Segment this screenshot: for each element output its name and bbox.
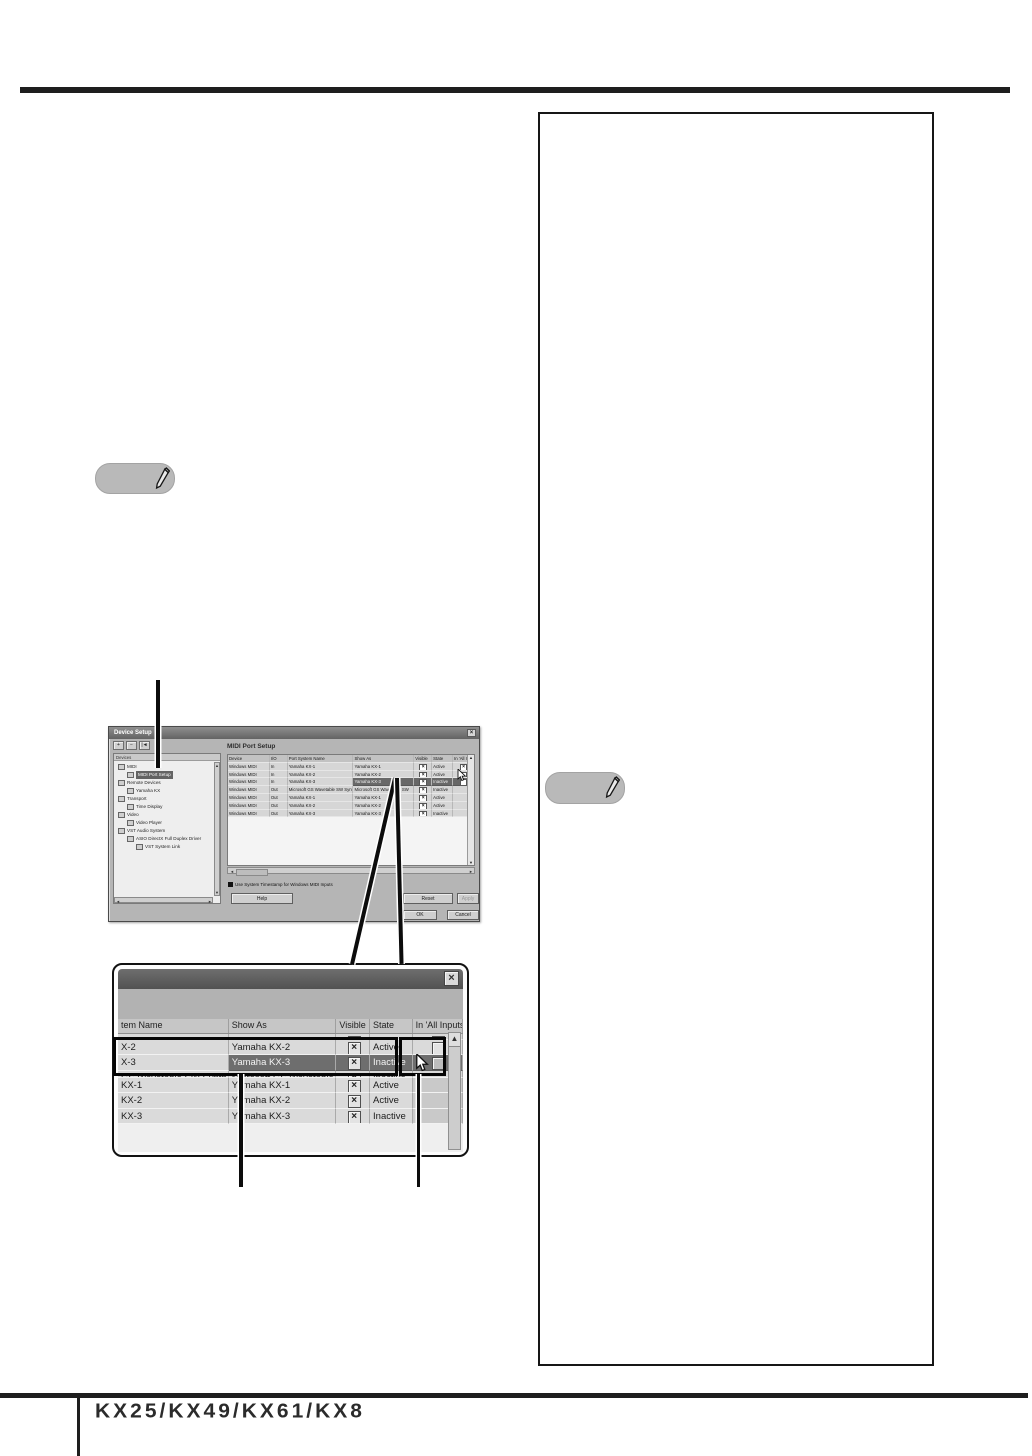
io-cell: Out: [270, 786, 288, 794]
scroll-up-icon[interactable]: ▲: [449, 1033, 460, 1047]
checkbox-checked-icon[interactable]: ×: [419, 803, 427, 810]
folder-icon: [127, 772, 134, 778]
scroll-up-icon[interactable]: ▲: [468, 755, 474, 760]
port-cell: Yamaha KX-1: [288, 763, 354, 771]
note-icon: [95, 463, 175, 494]
table-header-row: tem NameShow AsVisibleStateIn 'All Input…: [118, 1019, 463, 1034]
tree-vertical-scrollbar[interactable]: ▲ ▼: [214, 762, 220, 896]
close-icon[interactable]: ×: [444, 971, 459, 986]
visible-cell: ×: [336, 1109, 370, 1125]
folder-icon: [127, 804, 134, 810]
column-header: Device: [228, 755, 270, 763]
port-cell: Yamaha KX-1: [288, 794, 354, 802]
manual-page: Device Setup × + − |◄ Devices MIDIMIDI P…: [0, 0, 1032, 1456]
table-row[interactable]: Windows MIDIOutYamaha KX-2Yamaha KX-2×Ac…: [228, 802, 474, 810]
device-cell: Windows MIDI: [228, 810, 270, 818]
folder-icon: [127, 836, 134, 842]
tree-item[interactable]: Transport: [115, 795, 213, 803]
timestamp-label: Use System Timestamp for Windows MIDI In…: [235, 882, 333, 887]
tree-item-label: Remote Devices: [127, 779, 161, 787]
io-cell: In: [270, 778, 288, 786]
show-cell: Yamaha KX-1: [353, 763, 414, 771]
column-header: State: [370, 1019, 413, 1033]
timestamp-option[interactable]: Use System Timestamp for Windows MIDI In…: [228, 882, 333, 889]
tree-item-label: ASIO DirectX Full Duplex Driver: [136, 835, 201, 843]
visible-cell: ×: [414, 778, 432, 786]
folder-icon: [127, 788, 134, 794]
scroll-left-icon[interactable]: ◄: [229, 869, 235, 874]
scroll-down-icon[interactable]: ▼: [468, 860, 474, 865]
folder-icon: [118, 828, 125, 834]
tree-item[interactable]: MIDI: [115, 763, 213, 771]
apply-button[interactable]: Apply: [457, 893, 479, 904]
midi-port-table-body: DeviceI/OPort System NameShow AsVisibleS…: [228, 755, 474, 817]
show-as-cell: Yamaha KX-3: [229, 1109, 337, 1125]
io-cell: Out: [270, 802, 288, 810]
tree-item-label: MIDI: [127, 763, 137, 771]
tree-item-label: Video Player: [136, 819, 162, 827]
state-cell: Active: [432, 794, 453, 802]
state-cell: Active: [370, 1093, 413, 1109]
table-row[interactable]: Windows MIDIOutMicrosoft GS Wavetable SW…: [228, 786, 474, 794]
text-column-box: [538, 112, 934, 1366]
device-setup-dialog: Device Setup × + − |◄ Devices MIDIMIDI P…: [108, 726, 480, 922]
state-cell: Active: [432, 763, 453, 771]
port-cell: Microsoft GS Wavetable SW Synth: [288, 786, 354, 794]
column-header: In 'All Inputs': [413, 1019, 463, 1033]
tree-item-label: VST Audio System: [127, 827, 165, 835]
tree-item[interactable]: MIDI Port Setup: [115, 771, 213, 779]
visible-cell: ×: [414, 771, 432, 779]
visible-cell: ×: [414, 763, 432, 771]
callout-box-rows: [113, 1037, 398, 1076]
table-row[interactable]: Windows MIDIInYamaha KX-1Yamaha KX-1×Act…: [228, 763, 474, 771]
device-cell: Windows MIDI: [228, 778, 270, 786]
pencil-icon: [154, 467, 170, 491]
column-header: Show As: [229, 1019, 337, 1033]
tree-item[interactable]: ASIO DirectX Full Duplex Driver: [115, 835, 213, 843]
table-row[interactable]: Windows MIDIInYamaha KX-3Yamaha KX-3×Ina…: [228, 778, 474, 786]
table-header-row: DeviceI/OPort System NameShow AsVisibleS…: [228, 755, 474, 763]
state-cell: Active: [370, 1078, 413, 1094]
table-row[interactable]: Windows MIDIOutYamaha KX-3Yamaha KX-3×In…: [228, 810, 474, 818]
state-cell: Active: [432, 771, 453, 779]
show-cell: Yamaha KX-3: [353, 778, 414, 786]
checkbox-checked-icon[interactable]: ×: [419, 779, 427, 786]
device-cell: Windows MIDI: [228, 786, 270, 794]
tree-item-label: MIDI Port Setup: [136, 771, 173, 779]
devices-panel: Devices MIDIMIDI Port SetupRemote Device…: [113, 753, 221, 904]
show-cell: Yamaha KX-2: [353, 771, 414, 779]
device-cell: Windows MIDI: [228, 794, 270, 802]
state-cell: Inactive: [432, 786, 453, 794]
callout-line-checkbox: [417, 1074, 421, 1187]
column-header: Show As: [353, 755, 414, 763]
device-cell: Windows MIDI: [228, 771, 270, 779]
table-vertical-scrollbar[interactable]: ▲: [448, 1032, 461, 1150]
dialog-title: Device Setup: [114, 730, 152, 736]
show-cell: Microsoft GS Wavetable SW: [353, 786, 414, 794]
io-cell: In: [270, 771, 288, 779]
tree-item[interactable]: Video: [115, 811, 213, 819]
reset-button[interactable]: Reset: [403, 893, 453, 904]
folder-icon: [136, 844, 143, 850]
column-header: Visible: [336, 1019, 370, 1033]
folder-icon: [118, 764, 125, 770]
tree-item[interactable]: VST Audio System: [115, 827, 213, 835]
dialog-toolbar-area: [118, 989, 463, 1019]
name-cell: KX-3: [118, 1109, 229, 1125]
port-cell: Yamaha KX-3: [288, 810, 354, 818]
tree-item-label: Yamaha KX: [136, 787, 160, 795]
tree-item-label: Video: [127, 811, 139, 819]
checkbox-checked-icon[interactable]: ×: [419, 772, 427, 779]
state-cell: Inactive: [432, 810, 453, 818]
device-tree: MIDIMIDI Port SetupRemote DevicesYamaha …: [115, 763, 213, 851]
tree-item[interactable]: Remote Devices: [115, 779, 213, 787]
visible-cell: ×: [414, 786, 432, 794]
tree-item[interactable]: Yamaha KX: [115, 787, 213, 795]
checkbox-checked-icon[interactable]: ×: [419, 795, 427, 802]
checkbox-checked-icon[interactable]: ×: [348, 1111, 361, 1124]
scroll-left-icon[interactable]: ◄: [115, 899, 121, 904]
port-cell: Yamaha KX-2: [288, 771, 354, 779]
visible-cell: ×: [336, 1093, 370, 1109]
add-device-button[interactable]: +: [113, 741, 124, 750]
column-header: Visible: [414, 755, 432, 763]
scroll-up-icon[interactable]: ▲: [215, 763, 219, 768]
show-as-cell: Yamaha KX-2: [229, 1093, 337, 1109]
table-vertical-scrollbar[interactable]: ▲ ▼: [467, 755, 474, 865]
checkbox-checked-icon[interactable]: ×: [348, 1080, 361, 1093]
visible-cell: ×: [336, 1078, 370, 1094]
column-header: I/O: [270, 755, 288, 763]
mouse-cursor-icon: [415, 1054, 430, 1074]
product-logo: KX25/KX49/KX61/KX8: [95, 1401, 365, 1424]
folder-icon: [118, 780, 125, 786]
checkbox-checked-icon[interactable]: [228, 882, 233, 887]
table-horizontal-scrollbar[interactable]: ◄ ►: [227, 867, 475, 874]
table-row[interactable]: Windows MIDIOutYamaha KX-1Yamaha KX-1×Ac…: [228, 794, 474, 802]
show-cell: Yamaha KX-1: [353, 794, 414, 802]
close-icon[interactable]: ×: [467, 729, 476, 737]
remove-device-button[interactable]: −: [126, 741, 137, 750]
device-cell: Windows MIDI: [228, 763, 270, 771]
dialog-title-bar: [118, 969, 463, 989]
column-header: State: [432, 755, 453, 763]
checkbox-checked-icon[interactable]: ×: [419, 764, 427, 771]
checkbox-checked-icon[interactable]: ×: [419, 787, 427, 794]
column-header: tem Name: [118, 1019, 229, 1033]
io-cell: Out: [270, 810, 288, 818]
help-button[interactable]: Help: [231, 893, 293, 904]
folder-icon: [118, 812, 125, 818]
checkbox-checked-icon[interactable]: ×: [419, 811, 427, 818]
port-cell: Yamaha KX-2: [288, 802, 354, 810]
tree-item-label: Time Display: [136, 803, 162, 811]
footer-vertical-line: [77, 1393, 80, 1456]
table-row[interactable]: Windows MIDIInYamaha KX-2Yamaha KX-2×Act…: [228, 771, 474, 779]
cancel-button[interactable]: Cancel: [447, 910, 479, 920]
visible-cell: ×: [414, 810, 432, 818]
note-icon: [545, 772, 625, 804]
top-rule: [20, 87, 1010, 93]
name-cell: KX-2: [118, 1093, 229, 1109]
table-row[interactable]: KX-3Yamaha KX-3×Inactive: [118, 1109, 463, 1125]
tree-item[interactable]: Time Display: [115, 803, 213, 811]
mouse-cursor-icon: [457, 769, 467, 783]
io-cell: In: [270, 763, 288, 771]
scroll-down-icon[interactable]: ▼: [215, 890, 219, 895]
folder-icon: [127, 820, 134, 826]
callout-line-rows: [239, 1074, 243, 1187]
midi-port-setup-heading: MIDI Port Setup: [227, 743, 275, 750]
footer-rule: [0, 1393, 1028, 1398]
state-cell: Inactive: [370, 1109, 413, 1125]
device-cell: Windows MIDI: [228, 802, 270, 810]
scroll-right-icon[interactable]: ►: [467, 869, 473, 874]
goto-device-button[interactable]: |◄: [139, 741, 150, 750]
scroll-right-icon[interactable]: ►: [206, 899, 212, 904]
devices-panel-header: Devices: [114, 754, 220, 761]
tree-item-label: VST System Link: [145, 843, 180, 851]
tree-horizontal-scrollbar[interactable]: ◄ ►: [114, 897, 213, 903]
dialog-title-bar[interactable]: Device Setup ×: [109, 727, 479, 739]
tree-item[interactable]: Video Player: [115, 819, 213, 827]
ok-button[interactable]: OK: [403, 910, 437, 920]
state-cell: Active: [432, 802, 453, 810]
io-cell: Out: [270, 794, 288, 802]
show-cell: Yamaha KX-2: [353, 802, 414, 810]
state-cell: Inactive: [432, 778, 453, 786]
table-row[interactable]: KX-1Yamaha KX-1×Active: [118, 1078, 463, 1094]
tree-item[interactable]: VST System Link: [115, 843, 213, 851]
show-as-cell: Yamaha KX-1: [229, 1078, 337, 1094]
checkbox-checked-icon[interactable]: ×: [348, 1095, 361, 1108]
name-cell: KX-1: [118, 1078, 229, 1094]
table-row[interactable]: KX-2Yamaha KX-2×Active: [118, 1093, 463, 1109]
folder-icon: [118, 796, 125, 802]
midi-port-table: DeviceI/OPort System NameShow AsVisibleS…: [227, 754, 475, 866]
visible-cell: ×: [414, 802, 432, 810]
port-cell: Yamaha KX-3: [288, 778, 354, 786]
visible-cell: ×: [414, 794, 432, 802]
scrollbar-thumb[interactable]: [236, 869, 268, 876]
pencil-icon: [604, 776, 620, 800]
tree-item-label: Transport: [127, 795, 147, 803]
callout-line-tree: [156, 680, 160, 768]
column-header: Port System Name: [288, 755, 354, 763]
